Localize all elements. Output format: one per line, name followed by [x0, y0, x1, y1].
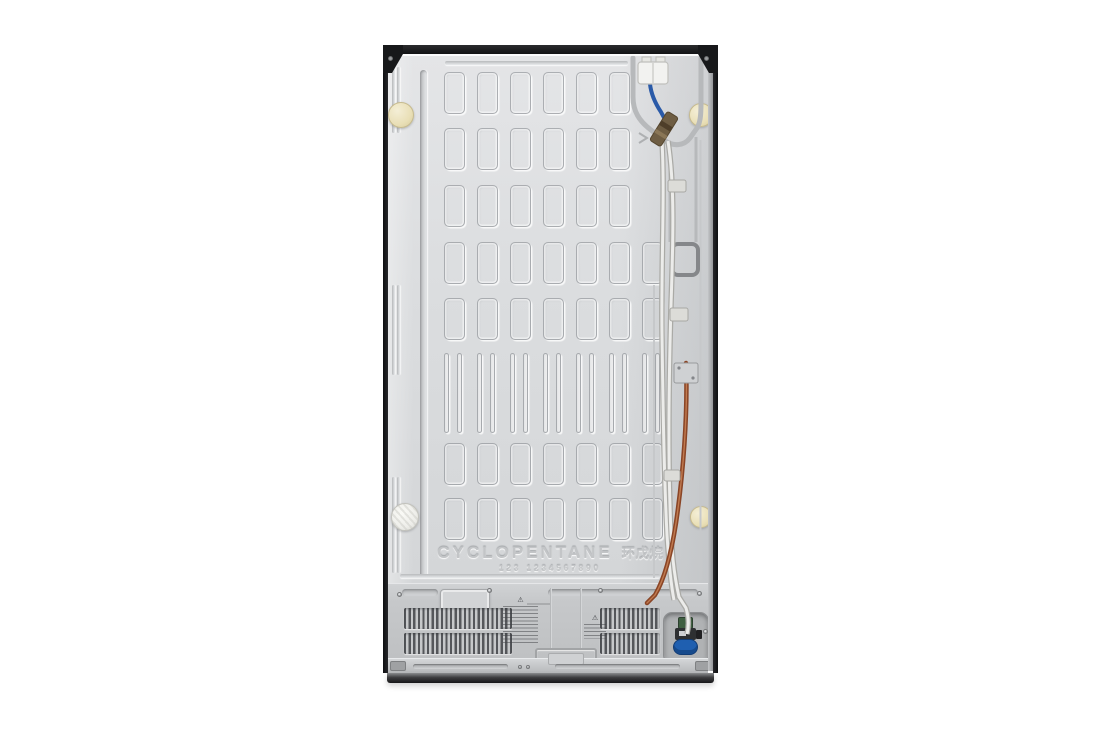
embossed-vent-slot	[457, 353, 462, 433]
embossed-vent-slot	[444, 353, 449, 433]
right-edge-trim	[713, 51, 718, 673]
ventilation-grille-left	[404, 608, 512, 654]
rail-screw	[598, 588, 603, 593]
embossed-vent-slot	[576, 128, 597, 170]
embossed-vent-slot	[576, 353, 581, 433]
bottom-screw	[518, 665, 522, 669]
embossed-vent-slot	[589, 353, 594, 433]
embossed-vent-slot	[543, 128, 564, 170]
embossed-insulation-text: CYCLOPENTANE	[437, 543, 612, 563]
embossed-vent-slot	[444, 185, 465, 227]
embossed-vent-slot	[477, 185, 498, 227]
embossed-vent-slot	[543, 72, 564, 114]
corner-bracket-screw	[704, 56, 709, 61]
bottom-screw	[526, 665, 530, 669]
water-valve-cable	[696, 630, 702, 639]
embossed-vent-slot	[477, 72, 498, 114]
embossed-vent-slot	[576, 185, 597, 227]
embossed-vent-slot	[510, 353, 515, 433]
refrigerator-back-panel: CYCLOPENTANE 环戊烷 123 1234567890 ⚠ ⚠	[383, 45, 718, 683]
warning-triangle-icon: ⚠	[592, 615, 598, 622]
product-photo-canvas: CYCLOPENTANE 环戊烷 123 1234567890 ⚠ ⚠	[0, 0, 1100, 730]
left-edge-trim	[383, 51, 388, 673]
embossed-vent-slot	[444, 298, 465, 340]
embossed-vent-slot	[444, 443, 465, 485]
grille-slats	[404, 608, 512, 629]
embossed-text-row: CYCLOPENTANE 环戊烷	[443, 543, 658, 565]
embossed-vent-slot	[622, 353, 627, 433]
embossed-vent-slot	[543, 298, 564, 340]
label-fine-print	[584, 624, 606, 639]
embossed-vent-slot	[543, 242, 564, 284]
bottom-rail-groove	[555, 664, 680, 669]
embossed-vent-slot	[543, 353, 548, 433]
embossed-vent-slot	[477, 353, 482, 433]
label-fine-print	[503, 606, 538, 643]
embossed-vent-slot	[444, 128, 465, 170]
rail-screw	[487, 588, 492, 593]
embossed-vent-slot	[576, 242, 597, 284]
embossed-vent-slot	[576, 498, 597, 540]
embossed-vent-slot	[543, 498, 564, 540]
embossed-vent-slot	[477, 443, 498, 485]
ventilation-grille-right	[600, 608, 660, 654]
screw-cap-bottom-left	[391, 503, 419, 531]
screw-cap-top-left	[388, 102, 414, 128]
rail-groove	[402, 589, 438, 596]
embossed-vent-slot	[642, 498, 663, 540]
embossed-vent-slot	[642, 443, 663, 485]
embossed-insulation-text-cjk: 环戊烷	[622, 543, 664, 562]
base-shadow-strip	[387, 673, 714, 683]
warning-label-right: ⚠	[584, 615, 606, 639]
embossed-vent-slot	[510, 498, 531, 540]
corner-bracket-screw	[388, 56, 393, 61]
embossed-vent-slot	[576, 72, 597, 114]
water-valve-inlet-cap	[673, 639, 698, 655]
embossed-vent-slot	[576, 298, 597, 340]
embossed-vent-slot	[576, 443, 597, 485]
rail-groove	[548, 589, 698, 596]
rail-screw	[697, 591, 702, 596]
embossed-vent-slot	[609, 443, 630, 485]
embossed-vent-slot	[609, 498, 630, 540]
center-channel-groove	[550, 588, 552, 650]
embossed-digits: 123 1234567890	[480, 564, 620, 573]
embossed-vent-slot	[655, 353, 660, 433]
embossed-vent-slot	[510, 72, 531, 114]
center-channel-notch	[527, 603, 550, 605]
embossed-vent-slot	[609, 298, 630, 340]
embossed-vent-slot	[444, 498, 465, 540]
top-edge-trim	[383, 45, 718, 54]
grille-slats	[404, 633, 512, 654]
embossed-vent-slot	[642, 298, 663, 340]
embossed-vent-slot	[510, 298, 531, 340]
embossed-vent-slot	[609, 128, 630, 170]
top-edge-highlight	[389, 54, 712, 56]
embossed-vent-slot	[490, 353, 495, 433]
warning-triangle-icon: ⚠	[517, 597, 523, 604]
embossed-vent-slot	[477, 242, 498, 284]
embossed-vent-slot	[543, 443, 564, 485]
grille-slats	[600, 608, 660, 629]
rail-screw	[397, 592, 402, 597]
embossed-vent-slot	[444, 242, 465, 284]
grille-slats	[600, 633, 660, 654]
embossed-vent-slot	[556, 353, 561, 433]
embossed-vent-slot	[477, 128, 498, 170]
embossed-vent-slot	[609, 242, 630, 284]
bottom-bracket-left	[390, 661, 406, 671]
bottom-rail-groove	[413, 664, 508, 669]
embossed-vent-slot	[642, 353, 647, 433]
center-channel-groove	[580, 588, 582, 650]
embossed-vent-slot	[642, 242, 663, 284]
embossed-vent-slot	[609, 185, 630, 227]
embossed-vent-slot	[510, 185, 531, 227]
embossed-vent-slot	[510, 443, 531, 485]
embossed-vent-slot	[510, 128, 531, 170]
embossed-vent-slot	[477, 298, 498, 340]
embossed-vent-slot	[523, 353, 528, 433]
embossed-vent-slot	[609, 353, 614, 433]
embossed-vent-slot	[609, 72, 630, 114]
embossed-vent-slot	[444, 72, 465, 114]
embossed-vent-slot	[477, 498, 498, 540]
embossed-vent-slot	[543, 185, 564, 227]
embossed-vent-slot	[510, 242, 531, 284]
